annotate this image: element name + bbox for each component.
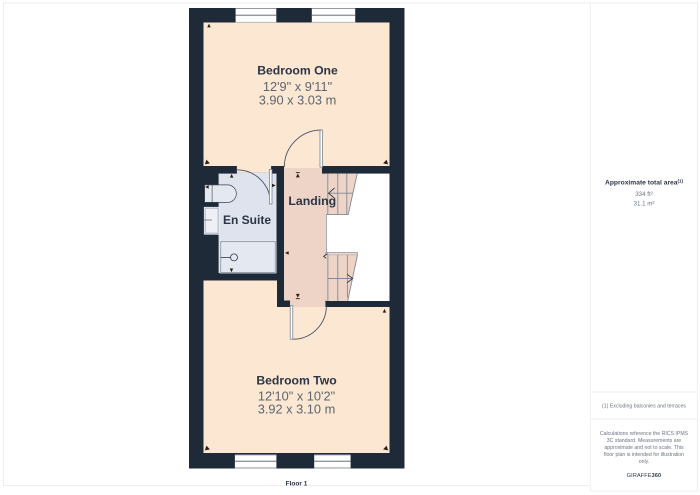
svg-text:Approximate total area(1): Approximate total area(1) bbox=[605, 179, 683, 187]
svg-text:31.1 m²: 31.1 m² bbox=[634, 201, 655, 208]
svg-text:(1) Excluding balconies and te: (1) Excluding balconies and terraces bbox=[602, 404, 686, 410]
svg-text:Bedroom Two: Bedroom Two bbox=[256, 374, 336, 388]
svg-text:Floor 1: Floor 1 bbox=[286, 481, 308, 488]
svg-text:334 ft²: 334 ft² bbox=[635, 191, 653, 198]
svg-text:3.90 x 3.03 m: 3.90 x 3.03 m bbox=[259, 92, 337, 107]
svg-text:floor plan is intended for ill: floor plan is intended for illustration bbox=[604, 452, 684, 458]
svg-text:3.92 x 3.10 m: 3.92 x 3.10 m bbox=[258, 402, 336, 417]
svg-text:En Suite: En Suite bbox=[223, 213, 271, 227]
svg-text:only.: only. bbox=[639, 459, 650, 465]
svg-text:approximate and not to scale.: approximate and not to scale. This bbox=[604, 445, 684, 451]
svg-text:3C standard. Measurements are: 3C standard. Measurements are bbox=[607, 438, 682, 444]
svg-text:Landing: Landing bbox=[288, 194, 336, 208]
svg-text:Calculations reference the RIC: Calculations reference the RICS IPMS bbox=[600, 431, 689, 437]
svg-text:GIRAFFE360: GIRAFFE360 bbox=[627, 473, 662, 479]
svg-text:Bedroom One: Bedroom One bbox=[257, 64, 338, 78]
